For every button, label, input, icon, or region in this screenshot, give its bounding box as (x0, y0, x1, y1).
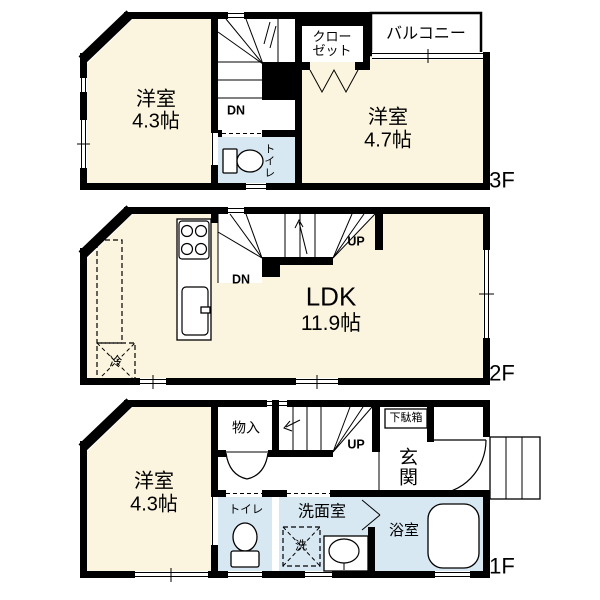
2f-kitchen-counter (177, 219, 211, 340)
1f-washroom-label: 洗面室 (298, 505, 346, 522)
1f-entrance-label: 玄関 (396, 447, 416, 487)
3f-closet-label-line1: クロー (312, 30, 351, 44)
floor-plan: 洋室 4.3帖 洋室 4.7帖 クロー ゼット バルコニー DN トイレ 3F … (0, 0, 600, 600)
1f-stairs-up-label: UP (347, 438, 364, 451)
1f-bathroom-label: 浴室 (389, 523, 419, 539)
3f-room2-size: 4.7帖 (364, 131, 412, 152)
1f-room-size: 4.3帖 (130, 495, 178, 516)
2f-ldk-size: 11.9帖 (301, 313, 361, 335)
1f-storage-doors (226, 452, 268, 479)
1f-sink-fixture (324, 536, 368, 571)
3f-toilet-label: トイレ (262, 143, 274, 179)
1f-toilet-fixture (231, 523, 259, 567)
3f-closet-label-line2: ゼット (312, 44, 351, 58)
2f-fridge-label: 冷 (109, 355, 122, 369)
floor-1f-label: 1F (489, 554, 515, 577)
1f-bathtub (428, 504, 479, 568)
2f-stairs-up-label: UP (347, 235, 364, 248)
floor-2f-label: 2F (489, 361, 515, 384)
1f-shoe-cabinet-label: 下駄箱 (390, 413, 423, 425)
3f-balcony-label: バルコニー (386, 27, 466, 44)
2f-stairs-dn-label: DN (232, 273, 250, 286)
3f-stairs-dn-label: DN (227, 104, 245, 117)
3f-toilet-fixture (223, 149, 263, 173)
1f-washer-label: 洗 (295, 540, 307, 553)
3f-room2-name: 洋室 (368, 108, 408, 129)
1f-room-name: 洋室 (134, 472, 174, 493)
1f-entry-door (434, 440, 486, 494)
1f-porch-steps (490, 437, 540, 499)
3f-room1-name: 洋室 (136, 90, 176, 111)
1f-storage-label: 物入 (232, 421, 260, 436)
2f-ldk-name: LDK (306, 283, 357, 310)
3f-room1-size: 4.3帖 (132, 112, 180, 133)
1f-toilet-label: トイレ (229, 504, 264, 516)
floor-3f-label: 3F (489, 168, 515, 191)
floor-2f (80, 207, 494, 389)
